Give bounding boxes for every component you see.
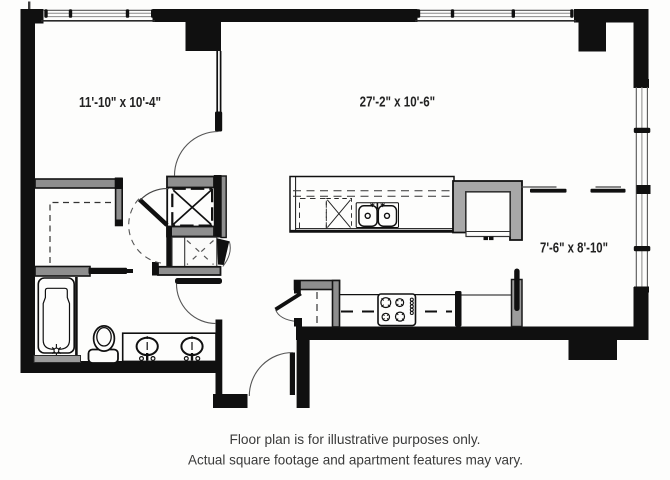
svg-text:Actual square footage and apar: Actual square footage and apartment feat… [188, 451, 523, 467]
svg-text:27'-2" x 10'-6": 27'-2" x 10'-6" [360, 95, 436, 111]
svg-text:11'-10" x 10'-4": 11'-10" x 10'-4" [79, 95, 161, 111]
svg-text:7'-6" x 8'-10": 7'-6" x 8'-10" [540, 240, 608, 256]
svg-text:Floor plan is for illustrative: Floor plan is for illustrative purposes … [230, 431, 481, 447]
